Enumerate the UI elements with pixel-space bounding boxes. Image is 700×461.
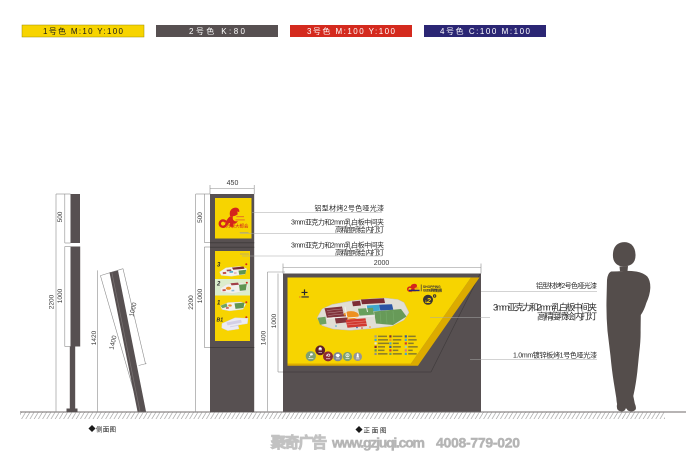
svg-text:www.gzjuqi.com: www.gzjuqi.com	[331, 435, 425, 451]
svg-text:450: 450	[227, 180, 239, 187]
svg-text:侧面图: 侧面图	[96, 425, 116, 434]
svg-text:4008-779-020: 4008-779-020	[436, 435, 520, 451]
svg-text:500: 500	[197, 212, 204, 223]
svg-text:1000: 1000	[129, 301, 139, 317]
svg-text:正面图: 正面图	[364, 427, 387, 435]
svg-text:高精度喷绘 内打灯: 高精度喷绘 内打灯	[335, 248, 384, 257]
svg-text:高精度喷绘 内打灯: 高精度喷绘 内打灯	[335, 225, 384, 234]
svg-text:1000: 1000	[271, 313, 278, 328]
svg-text:4号色 C:100 M:100: 4号色 C:100 M:100	[440, 26, 531, 36]
svg-text:B1: B1	[217, 318, 224, 324]
svg-text:GUIDE 购物指南: GUIDE 购物指南	[423, 287, 443, 292]
svg-text:1000: 1000	[197, 288, 204, 303]
svg-text:铝型材烤2号色哑光漆: 铝型材烤2号色哑光漆	[536, 281, 597, 290]
svg-text:2000: 2000	[374, 260, 390, 267]
svg-text:万聚大都会: 万聚大都会	[226, 223, 249, 230]
svg-text:3mm亚克力和2mm乳白板中间夹: 3mm亚克力和2mm乳白板中间夹	[291, 218, 384, 227]
svg-text:2: 2	[426, 296, 432, 305]
svg-text:2200: 2200	[188, 295, 195, 310]
svg-text:500: 500	[57, 211, 64, 222]
svg-text:3号色 M:100 Y:100: 3号色 M:100 Y:100	[307, 26, 396, 36]
svg-text:1号色 M:10 Y:100: 1号色 M:10 Y:100	[43, 26, 124, 36]
svg-text:1000: 1000	[57, 288, 64, 303]
svg-text:聚奇广告: 聚奇广告	[270, 434, 327, 452]
svg-text:2: 2	[216, 282, 221, 288]
svg-text:3mm亚克力和2mm乳白板中间夹: 3mm亚克力和2mm乳白板中间夹	[291, 241, 384, 250]
svg-text:高精度喷绘 内打灯: 高精度喷绘 内打灯	[537, 311, 597, 322]
svg-text:1420: 1420	[91, 330, 98, 345]
svg-text:2号色 K:80: 2号色 K:80	[189, 26, 246, 36]
svg-text:铝型材烤2号色哑光漆: 铝型材烤2号色哑光漆	[315, 204, 385, 213]
svg-text:1400: 1400	[109, 334, 119, 350]
svg-text:1.0mm镀锌板烤1号色哑光漆: 1.0mm镀锌板烤1号色哑光漆	[513, 351, 597, 360]
svg-text:1400: 1400	[260, 330, 267, 345]
svg-text:2200: 2200	[49, 294, 56, 309]
